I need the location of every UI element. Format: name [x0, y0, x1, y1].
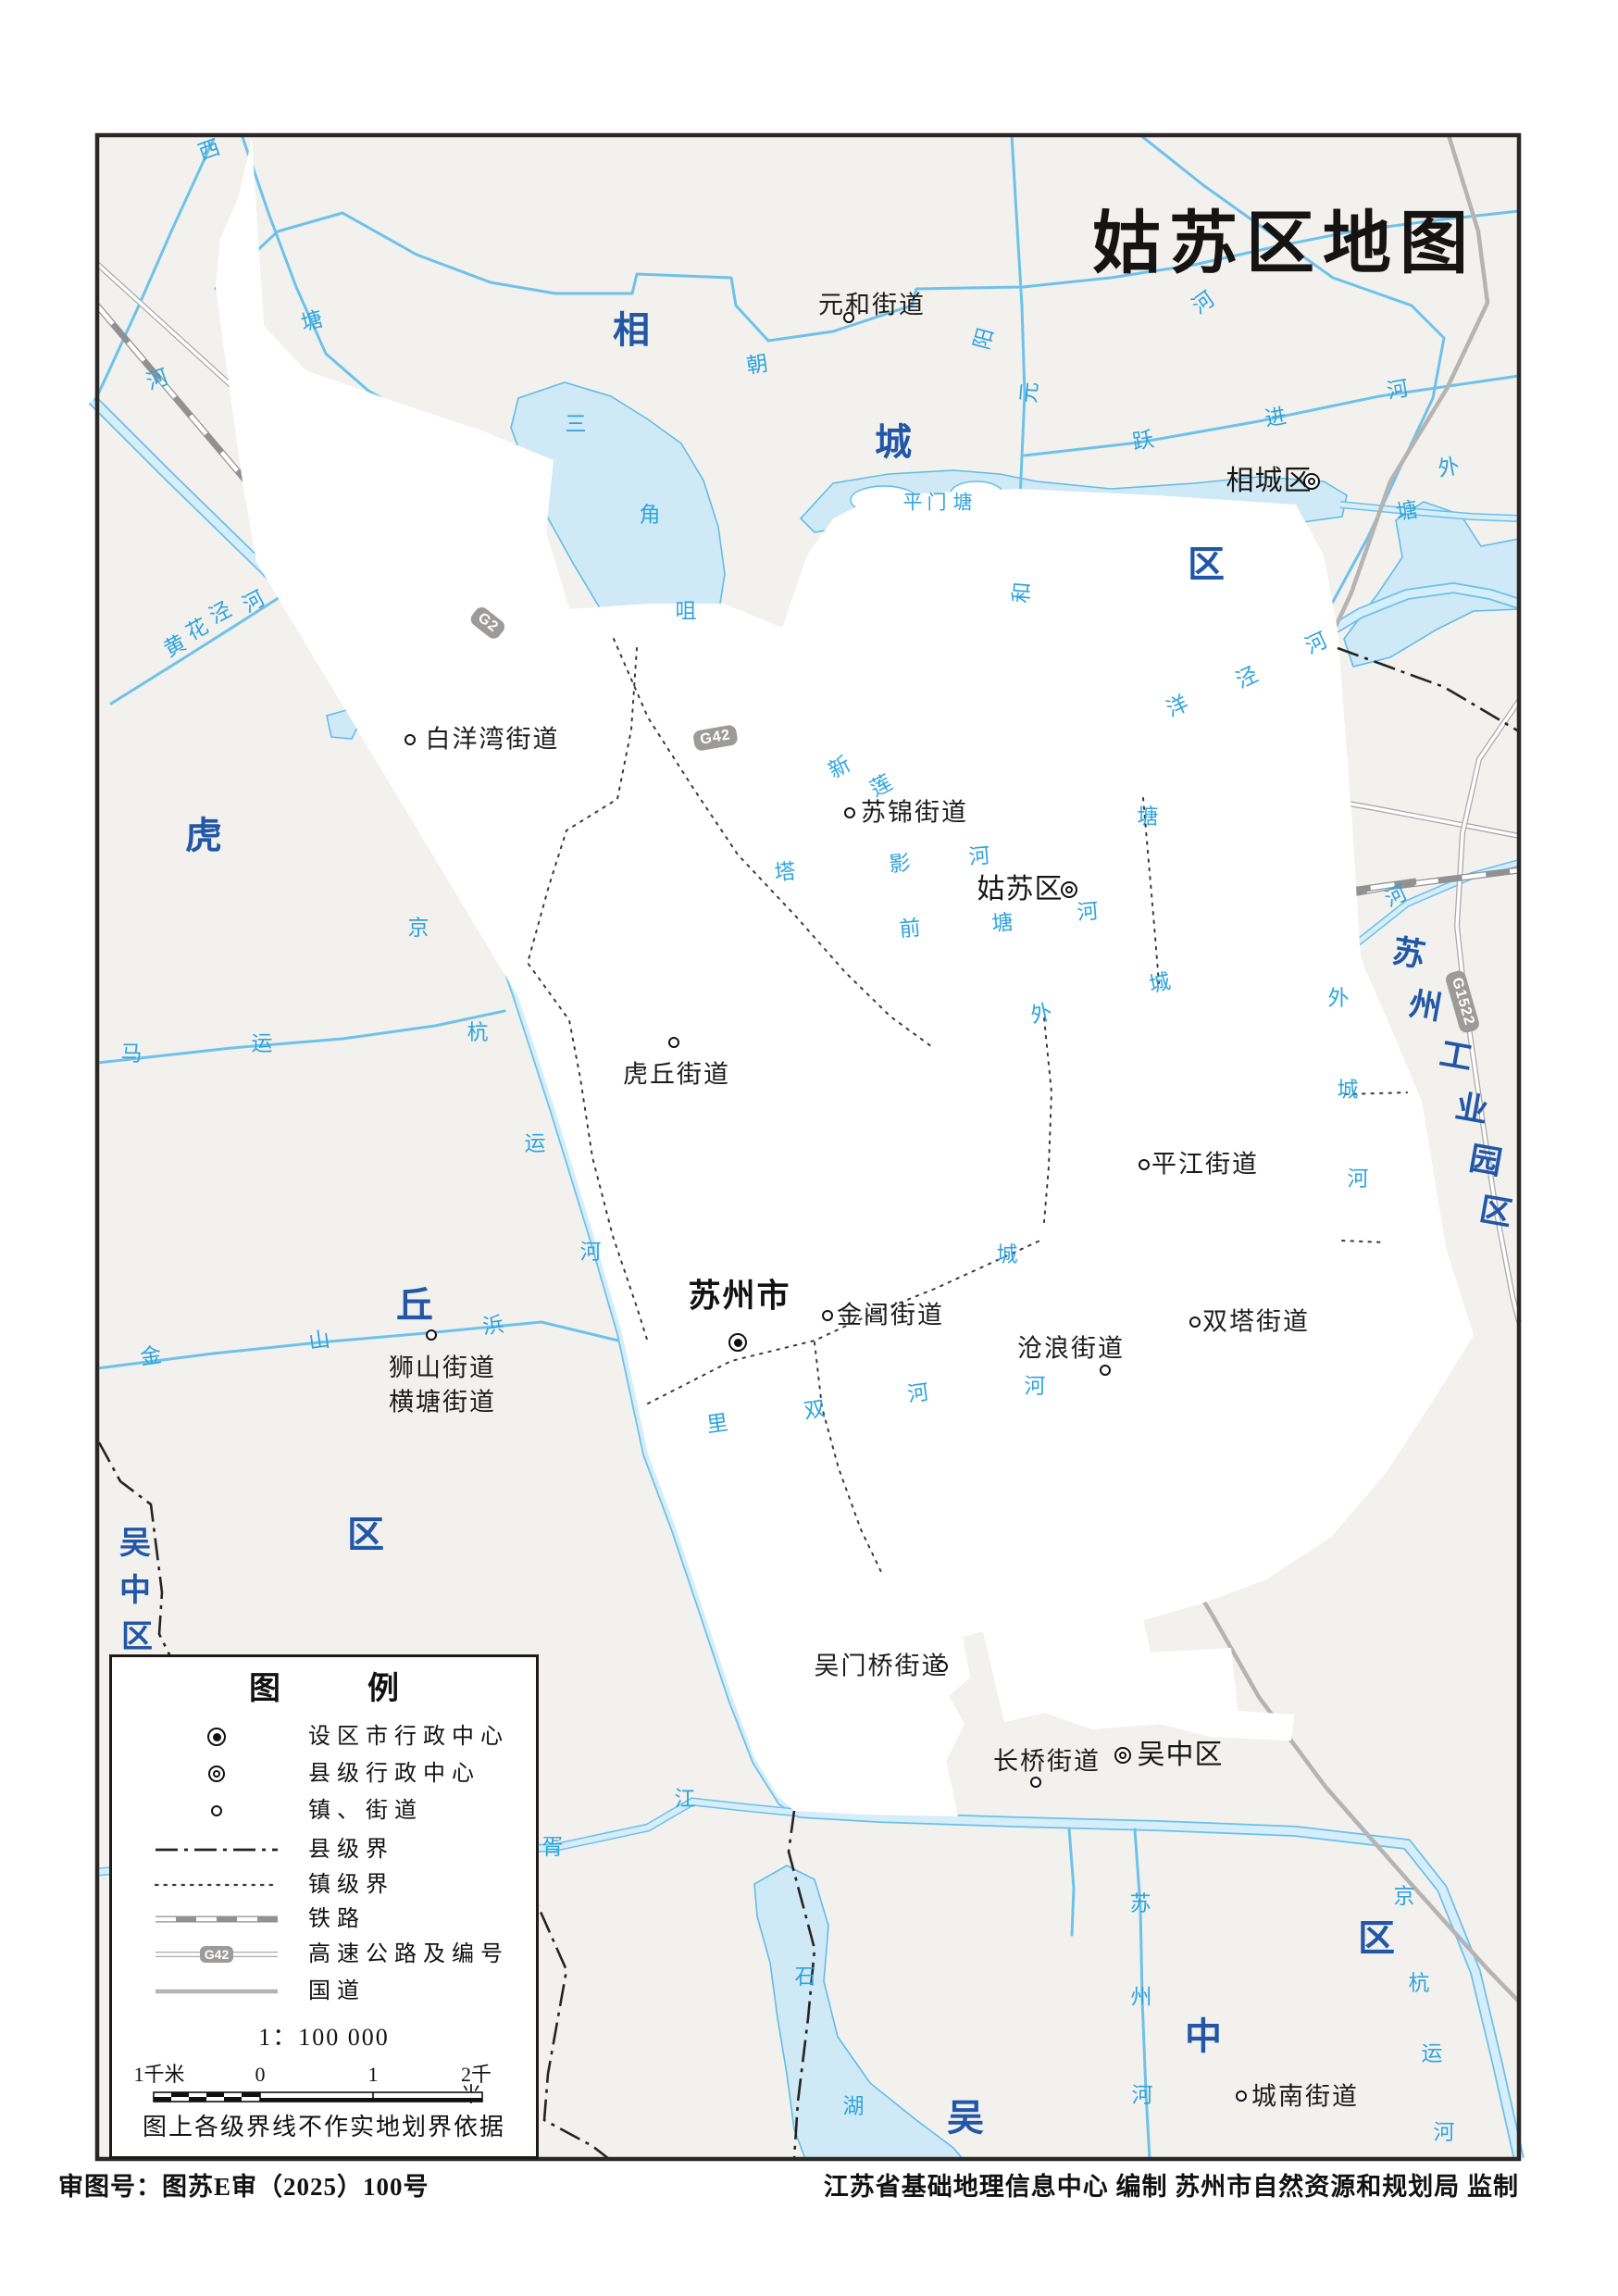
district-label: 姑苏区 [977, 876, 1064, 904]
river-label: 河 [968, 845, 991, 868]
river-label: 运 [1422, 2043, 1443, 2065]
district-zone-char: 州 [1407, 988, 1445, 1026]
street-label: 金阊街道 [837, 1304, 944, 1329]
legend-item-label: 县级行政中心 [308, 1763, 480, 1785]
river-label: 河 [1348, 1168, 1369, 1190]
district-zone-char: 工 [1438, 1038, 1475, 1076]
legend-scale-text: 1：100 000 [112, 2026, 536, 2050]
map-approval-number: 审图号：图苏E审（2025）100号 [58, 2172, 429, 2202]
marker-town-icon [426, 1329, 437, 1341]
street-label: 横塘街道 [389, 1391, 496, 1416]
scale-tick: 1 [368, 2065, 379, 2085]
river-label: 江 [675, 1789, 696, 1810]
district-zone-char: 区 [1477, 1193, 1515, 1231]
legend-item-label: 高速公路及编号 [308, 1943, 509, 1965]
district-zone-char: 中 [1185, 2018, 1222, 2055]
street-label: 城南街道 [1251, 2085, 1359, 2110]
marker-town-icon [404, 734, 416, 745]
marker-town-icon [822, 1310, 833, 1321]
district-zone-char: 相 [613, 312, 650, 349]
river-label: 胥 [542, 1837, 564, 1858]
street-label: 吴门桥街道 [815, 1654, 949, 1679]
district-zone-char: 虎 [185, 817, 222, 855]
scale-tick: 0 [255, 2065, 266, 2085]
legend-symbol-town-icon [138, 1797, 295, 1825]
river-label: 外 [1437, 455, 1462, 480]
marker-town-icon [843, 312, 854, 323]
river-label: 影 [889, 853, 912, 876]
legend-box: 图 例 设区市行政中心 县级行政中心 镇、街道 县级界 镇级界 [109, 1654, 539, 2159]
street-label: 狮山街道 [389, 1356, 496, 1381]
river-label: 塘 [1138, 806, 1159, 828]
marker-town-icon [1236, 2090, 1247, 2102]
marker-county-icon [1303, 473, 1320, 490]
river-label: 马 [121, 1043, 143, 1065]
river-label: 山 [307, 1329, 331, 1353]
river-label: 双 [803, 1398, 827, 1422]
marker-county-icon [1114, 1747, 1131, 1764]
river-label: 外 [1028, 1001, 1053, 1026]
river-label: 湖 [843, 2096, 865, 2117]
district-zone-char: 区 [1358, 1920, 1395, 1957]
marker-town-icon [844, 807, 855, 818]
river-label: 河 [1077, 901, 1100, 924]
legend-item-label: 设区市行政中心 [308, 1726, 509, 1748]
river-label: 前 [899, 917, 922, 941]
district-zone-char: 吴 [119, 1528, 151, 1559]
district-zone-char: 园 [1467, 1142, 1505, 1180]
river-label: 咀 [676, 601, 697, 622]
street-label: 苏锦街道 [861, 801, 968, 826]
legend-symbol-expressway-icon: G42 [138, 1940, 295, 1968]
legend-symbol-county-center-icon [138, 1760, 295, 1788]
marker-city-icon [728, 1333, 747, 1352]
district-zone-char: 丘 [396, 1287, 433, 1324]
legend-symbol-city-center-icon [138, 1723, 295, 1751]
street-label: 虎丘街道 [623, 1063, 730, 1088]
river-label: 塔 [774, 861, 797, 884]
district-zone-char: 中 [119, 1575, 151, 1606]
map-credits: 江苏省基础地理信息中心 编制 苏州市自然资源和规划局 监制 [824, 2172, 1519, 2202]
district-zone-char: 区 [347, 1516, 384, 1554]
river-label: 河 [580, 1242, 602, 1263]
river-label: 角 [640, 505, 661, 526]
legend-title: 图 例 [112, 1674, 536, 1705]
river-label: 塘 [991, 912, 1014, 935]
district-zone-char: 城 [875, 424, 912, 461]
scale-bar [149, 2090, 501, 2105]
city-label: 苏州市 [688, 1280, 790, 1313]
scale-tick: 1千米 [133, 2065, 184, 2085]
river-label: 元 [1018, 381, 1041, 405]
river-label: 金 [139, 1344, 163, 1368]
river-label: 石 [795, 1966, 816, 1988]
legend-item-label: 铁路 [308, 1908, 366, 1930]
river-label: 城 [997, 1244, 1018, 1266]
river-label: 京 [408, 917, 429, 939]
river-label: 进 [1263, 406, 1288, 430]
river-label: 河 [906, 1381, 930, 1405]
river-label: 三 [566, 414, 587, 435]
legend-expressway-badge: G42 [200, 1946, 233, 1963]
river-label: 城 [1338, 1079, 1359, 1101]
river-label: 河 [1025, 1376, 1046, 1397]
marker-town-icon [937, 1661, 948, 1672]
river-label: 门 [927, 493, 947, 513]
river-label: 杭 [467, 1022, 489, 1043]
river-label: 运 [252, 1033, 273, 1054]
map-title: 姑苏区地图 [1092, 209, 1476, 278]
street-label: 平江街道 [1151, 1153, 1259, 1178]
street-label: 白洋湾街道 [426, 728, 560, 753]
legend-symbol-railway-icon [138, 1905, 295, 1933]
river-label: 朝 [745, 353, 769, 377]
district-zone-char: 吴 [947, 2100, 984, 2137]
legend-symbol-national-road-icon [138, 1978, 295, 2005]
marker-town-icon [1030, 1777, 1041, 1788]
river-label: 里 [705, 1412, 729, 1436]
legend-note: 图上各级界线不作实地划界依据 [112, 2115, 536, 2139]
marker-town-icon [668, 1037, 679, 1048]
marker-county-icon [1061, 881, 1077, 898]
legend-symbol-county-boundary-icon [138, 1836, 295, 1864]
district-zone-char: 区 [121, 1621, 153, 1653]
marker-town-icon [1100, 1365, 1111, 1376]
district-zone-char: 苏 [1390, 935, 1428, 973]
street-label: 元和街道 [818, 293, 926, 318]
river-label: 塘 [1395, 499, 1420, 524]
river-label: 州 [1131, 1987, 1152, 2008]
legend-item-label: 县级界 [308, 1839, 394, 1861]
map-page: 姑苏区地图 元和街道白洋湾街道苏锦街道虎丘街道平江街道金阊街道沧浪街道双塔街道狮… [0, 0, 1618, 2296]
river-label: 杭 [1409, 1973, 1430, 1994]
street-label: 长桥街道 [993, 1750, 1101, 1775]
river-label: 平 [903, 493, 923, 513]
river-label: 运 [525, 1133, 546, 1154]
marker-town-icon [1189, 1316, 1201, 1328]
legend-item-label: 镇、街道 [308, 1800, 423, 1822]
marker-town-icon [1139, 1159, 1150, 1170]
river-label: 浜 [481, 1314, 505, 1338]
legend-item-label: 国道 [308, 1980, 366, 2003]
legend-symbol-town-boundary-icon [138, 1871, 295, 1899]
river-label: 和 [1011, 581, 1034, 605]
district-label: 吴中区 [1138, 1741, 1224, 1769]
river-label: 京 [1394, 1886, 1415, 1907]
district-zone-char: 业 [1453, 1091, 1491, 1129]
river-label: 河 [1132, 2085, 1153, 2106]
district-label: 相城区 [1226, 468, 1313, 495]
river-label: 跃 [1131, 429, 1156, 454]
district-zone-char: 区 [1188, 546, 1225, 583]
river-label: 苏 [1130, 1893, 1151, 1915]
river-label: 外 [1328, 988, 1350, 1009]
river-label: 河 [1434, 2122, 1455, 2143]
river-label: 塘 [953, 493, 973, 513]
river-label: 城 [1147, 970, 1172, 995]
street-label: 沧浪街道 [1017, 1337, 1125, 1362]
legend-item-label: 镇级界 [308, 1874, 394, 1896]
river-label: 河 [1386, 378, 1411, 403]
street-label: 双塔街道 [1202, 1310, 1310, 1335]
